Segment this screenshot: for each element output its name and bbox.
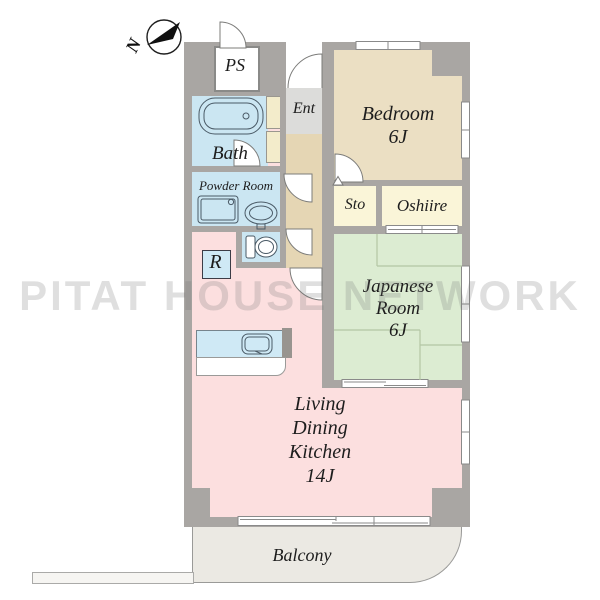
japanese-room-label: Japanese Room 6J xyxy=(334,276,462,342)
storage-label: Sto xyxy=(334,196,376,214)
plan-symbols-layer: N xyxy=(0,0,600,600)
bedroom-name: Bedroom xyxy=(334,103,462,126)
ldk-line1: Living xyxy=(250,392,390,416)
ldk-size: 14J xyxy=(250,464,390,488)
ldk-line3: Kitchen xyxy=(250,440,390,464)
refrigerator-label: R xyxy=(202,251,229,274)
toilet-icon xyxy=(246,236,277,258)
north-compass-icon: N xyxy=(121,20,181,56)
sliding-door xyxy=(342,380,428,388)
entrance-doorway xyxy=(286,50,322,88)
japanese-room-size: 6J xyxy=(334,320,462,342)
kitchen-sink-icon xyxy=(242,334,272,354)
sliding-door xyxy=(386,226,458,234)
ldk-line2: Dining xyxy=(250,416,390,440)
entrance-label: Ent xyxy=(286,100,322,118)
oshiire-label: Oshiire xyxy=(382,196,462,216)
powder-room-label: Powder Room xyxy=(192,179,280,194)
ldk-label: Living Dining Kitchen 14J xyxy=(250,392,390,488)
compass-north-label: N xyxy=(121,34,145,56)
bedroom-size: 6J xyxy=(334,126,462,149)
sliding-window xyxy=(238,516,430,526)
japanese-room-line1: Japanese xyxy=(334,276,462,298)
bedroom-label: Bedroom 6J xyxy=(334,103,462,149)
washing-machine-pan-icon xyxy=(198,196,238,223)
washbasin-icon xyxy=(245,202,277,229)
bath-label: Bath xyxy=(192,143,268,165)
japanese-room-line2: Room xyxy=(334,298,462,320)
ps-label: PS xyxy=(214,55,256,76)
floor-plan: N PS Bath Ent Bedroom 6J Powder Room Sto… xyxy=(0,0,600,600)
balcony-label: Balcony xyxy=(222,545,382,566)
bathtub-icon xyxy=(199,98,263,134)
